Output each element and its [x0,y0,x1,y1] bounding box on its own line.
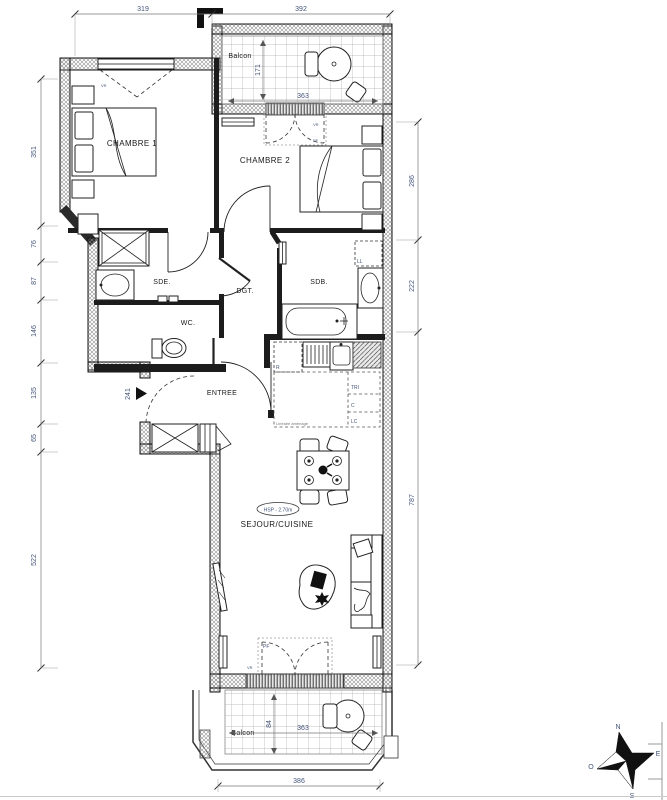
chair [300,490,319,504]
dim-left-76: 76 [31,240,38,248]
entree-label: ENTREE [207,390,237,397]
sde-label: SDE. [153,279,171,286]
balcony-top-depth: 171 [255,64,262,76]
living-door-vr-label: VR [247,665,253,670]
dim-left-351: 351 [31,146,38,158]
nightstand [362,126,382,144]
dim-left-146: 146 [31,325,38,337]
dim-left-522: 522 [31,554,38,566]
balcony-chair [305,52,318,76]
balcony-bottom: Balcon 363 84 386 [193,690,398,792]
pillow [363,182,381,209]
pillow [363,149,381,176]
pillow [75,112,93,139]
entry-arrow-icon [136,387,147,400]
sejour-label: SEJOUR/CUISINE [241,520,314,529]
balcony-door-pf-label: PF [313,138,319,143]
c-label: C [351,403,355,409]
nightstand [72,180,94,198]
chambre2-balcony-door: VR PF [264,103,326,145]
sejour: HSP - 2.70m SEJOUR/CUISINE [213,435,382,668]
lc-label: LC [351,419,358,425]
entry-door: 241 [125,376,194,424]
chambre2-door [224,186,270,232]
balcony-outer-width: 386 [293,778,305,785]
balcony-table [317,47,351,81]
compass-rose: N E S O [588,724,660,800]
chambre1-door [168,232,208,272]
sde: SDE. [96,230,178,302]
chambre1-window: VR [98,59,174,97]
toilet-tank [152,339,162,358]
balcony-bottom-width: 363 [297,725,309,732]
washer-label: LL [357,259,363,265]
dim-left-135: 135 [31,387,38,399]
dim-right-286: 286 [409,175,416,187]
wc: WC. [152,320,195,358]
dim-left-65: 65 [31,434,38,442]
cupboard [200,424,216,452]
balcony-bottom-depth: 84 [266,720,273,728]
balcony-chair [323,704,337,728]
nightstand [72,86,94,104]
living-balcony-door: PF VR [246,638,344,688]
party-wall-stub-2 [197,8,223,14]
dgt-label: DGT. [236,288,253,295]
hall-to-living-door [221,362,271,412]
window-shutter-label: VR [101,83,107,88]
balcony-door-vr-label: VR [313,122,319,127]
compass-o: O [588,764,594,771]
living-door-pf-label: PF [263,644,269,650]
dim-right-222: 222 [409,280,416,292]
sofa [351,535,382,628]
chambre2-label: CHAMBRE 2 [240,156,290,165]
dim-left-87: 87 [31,277,38,285]
kitchen-counter-outline [274,372,380,427]
entree: ENTREE [152,390,237,452]
dim-right-787: 787 [409,494,416,506]
dimension-right-chain: 286 222 787 [396,119,422,669]
wc-label: WC. [181,320,196,327]
chest [78,214,98,234]
fridge-label: R [276,365,280,371]
chair [327,488,348,505]
entry-door-dimension: 241 [125,388,132,400]
pillow [75,145,93,172]
ceiling-height-note: HSP - 2.70m [264,508,293,514]
sdb-label: SDB. [310,279,328,286]
chambre1-label: CHAMBRE 1 [107,139,157,148]
chambre1: CHAMBRE 1 [72,86,157,234]
compass-e: E [656,751,661,758]
nightstand [362,214,382,230]
sdb: LL SDB. [279,241,383,339]
chambre2: CHAMBRE 2 [222,118,383,230]
balcony-top-width: 363 [297,93,309,100]
planter [384,736,398,758]
kitchen-note: Linéaire aménagé [276,421,309,426]
tri-label: TRI [351,385,359,391]
dim-392: 392 [295,6,307,13]
dim-319: 319 [137,6,149,13]
compass-n: N [615,724,620,731]
dimension-left-chain: 351 76 87 146 135 65 522 [31,76,58,672]
floor-plan-sheet: VR 241 [0,0,667,800]
balcony-top: Balcon 171 363 [222,36,383,104]
floor-plan-drawing: VR 241 [0,0,667,800]
centerpiece [319,466,328,475]
worktop [353,342,381,368]
balcon-top-label: Balcon [228,53,251,60]
kitchen: R TRI C LC Linéaire aménagé [274,342,381,427]
